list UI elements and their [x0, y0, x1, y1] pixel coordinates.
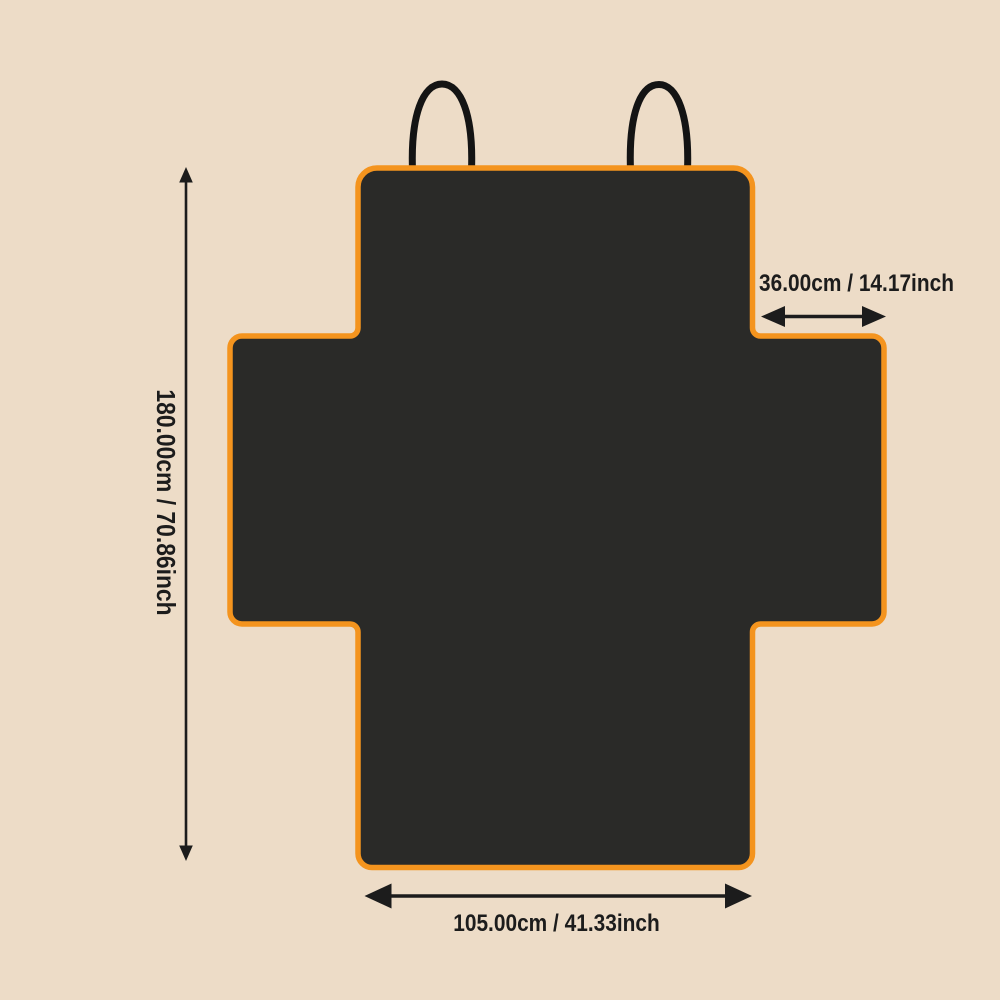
- svg-text:36.00cm / 14.17inch: 36.00cm / 14.17inch: [759, 270, 954, 297]
- svg-text:105.00cm / 41.33inch: 105.00cm / 41.33inch: [453, 910, 660, 937]
- svg-text:180.00cm / 70.86inch: 180.00cm / 70.86inch: [151, 389, 180, 615]
